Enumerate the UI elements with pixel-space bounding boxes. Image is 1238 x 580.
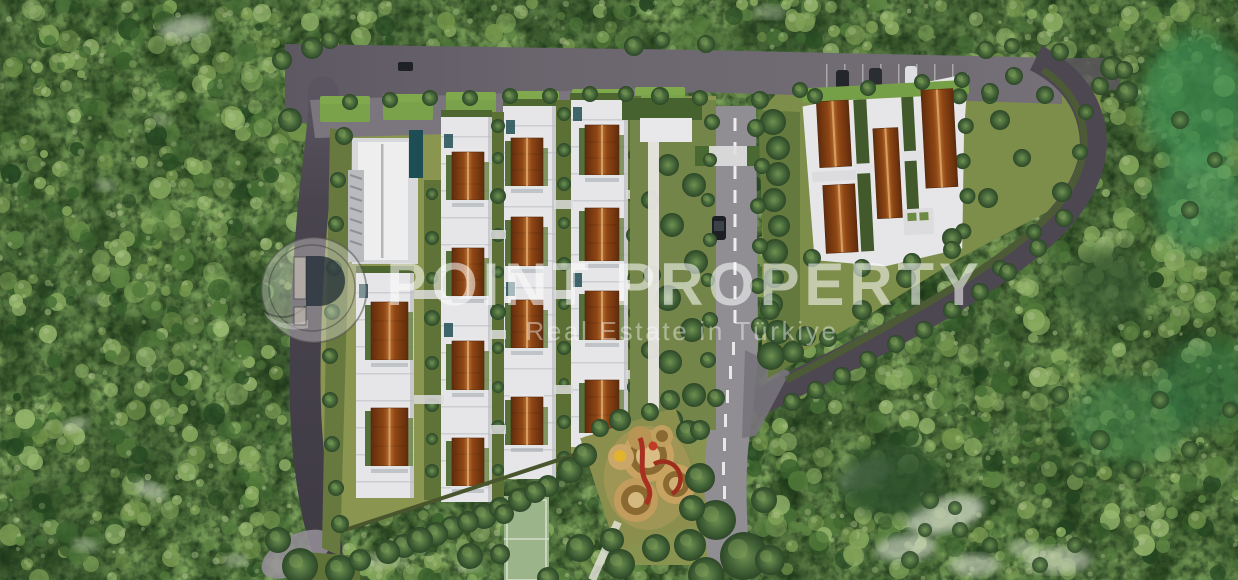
svg-text:Real Estate in Türkiye: Real Estate in Türkiye — [525, 316, 838, 346]
svg-text:POINT PROPERTY: POINT PROPERTY — [386, 251, 983, 318]
